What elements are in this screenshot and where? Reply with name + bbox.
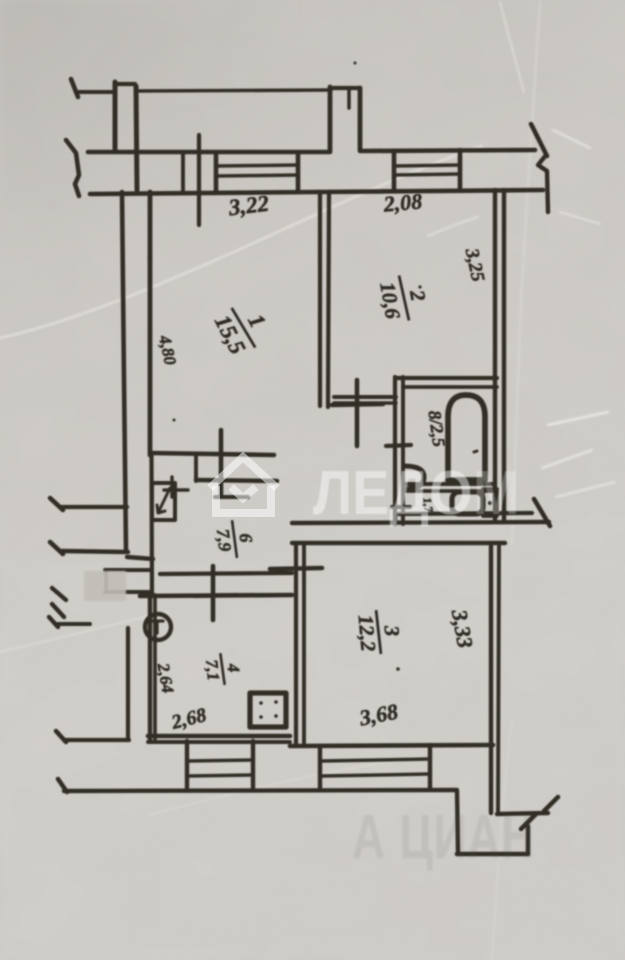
svg-text:3: 3 bbox=[379, 624, 404, 638]
svg-text:М: М bbox=[473, 459, 519, 527]
svg-text:ЛЕДО: ЛЕДО bbox=[313, 459, 472, 527]
svg-text:А ЦИАН: А ЦИАН bbox=[352, 802, 535, 871]
svg-text:4: 4 bbox=[223, 662, 243, 673]
svg-text:7,9: 7,9 bbox=[213, 528, 235, 552]
svg-text:3,22: 3,22 bbox=[226, 191, 270, 221]
svg-text:12,2: 12,2 bbox=[353, 614, 380, 653]
svg-text:2,08: 2,08 bbox=[382, 188, 424, 216]
svg-text:7,1: 7,1 bbox=[202, 659, 223, 682]
